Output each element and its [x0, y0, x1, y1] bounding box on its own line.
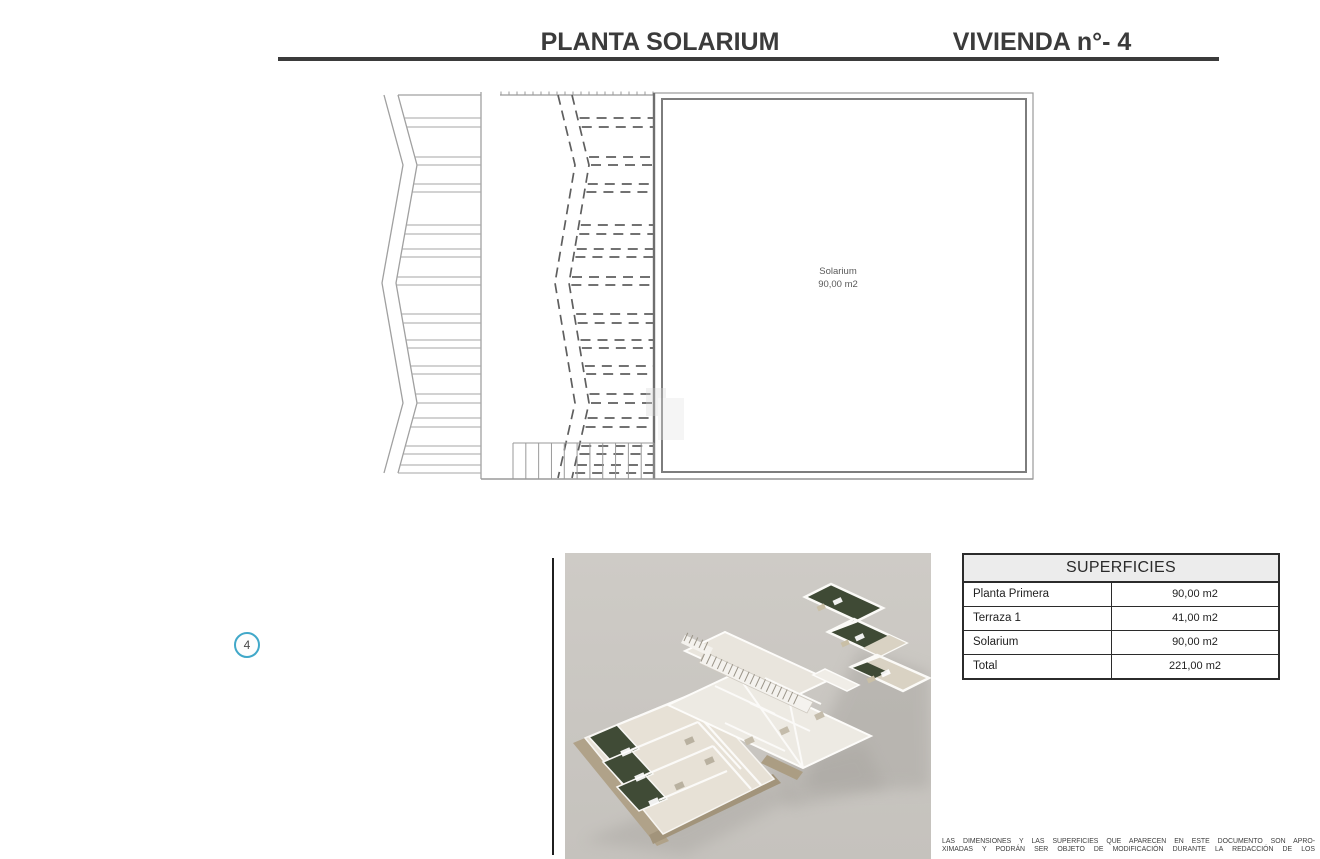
row-value: 221,00 m2: [1112, 655, 1278, 678]
disclaimer-text: LAS DIMENSIONES Y LAS SUPERFICIES QUE AP…: [942, 838, 1315, 856]
dwelling-number-title: VIVIENDA n°- 4: [892, 28, 1192, 57]
table-row: Terraza 1 41,00 m2: [964, 607, 1278, 631]
cliff-edge-outline: [382, 92, 481, 479]
row-value: 90,00 m2: [1112, 631, 1278, 654]
dashed-step-lines: [571, 118, 653, 473]
row-value: 41,00 m2: [1112, 607, 1278, 630]
table-row: Planta Primera 90,00 m2: [964, 583, 1278, 607]
top-ruler: [500, 92, 654, 96]
stairs: [513, 443, 654, 479]
row-label: Total: [964, 655, 1112, 678]
table-row: Total 221,00 m2: [964, 655, 1278, 678]
unit-number: 4: [244, 638, 251, 652]
disclaimer-line: XIMADAS Y PODRÁN SER OBJETO DE MODIFICAC…: [942, 846, 1315, 854]
row-value: 90,00 m2: [1112, 583, 1278, 606]
vertical-divider-line: [552, 558, 554, 855]
room-area-label: 90,00 m2: [818, 279, 858, 290]
room-label-group: Solarium 90,00 m2: [818, 266, 858, 290]
plan-sheet-page: PLANTA SOLARIUM VIVIENDA n°- 4: [0, 0, 1320, 859]
row-label: Solarium: [964, 631, 1112, 654]
table-row: Solarium 90,00 m2: [964, 631, 1278, 655]
superficies-table: SUPERFICIES Planta Primera 90,00 m2 Terr…: [962, 553, 1280, 680]
page-title: PLANTA SOLARIUM: [460, 28, 860, 57]
watermark-smudge: [646, 388, 684, 440]
row-label: Terraza 1: [964, 607, 1112, 630]
axonometric-3d-render: [565, 553, 931, 859]
room-label: Solarium: [819, 266, 857, 277]
title-rule: [278, 57, 1219, 61]
unit-number-marker: 4: [234, 632, 260, 658]
dashed-terrain-curves: [555, 95, 589, 478]
solarium-room-outline: [481, 93, 1033, 479]
terrace-step-lines: [396, 118, 481, 473]
table-title: SUPERFICIES: [964, 555, 1278, 583]
row-label: Planta Primera: [964, 583, 1112, 606]
